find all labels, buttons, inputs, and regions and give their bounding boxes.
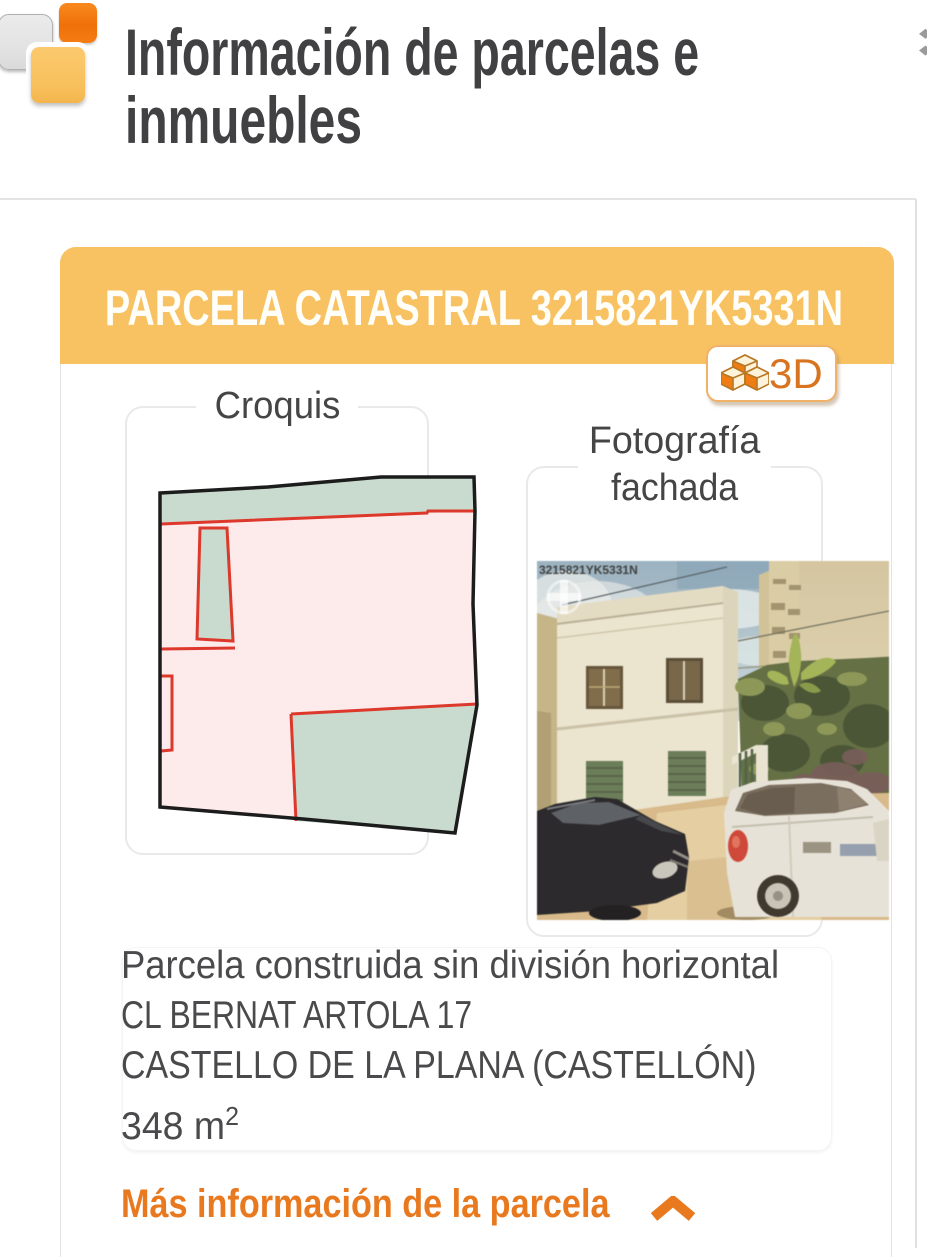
svg-text:3215821YK5331N: 3215821YK5331N (539, 563, 638, 577)
